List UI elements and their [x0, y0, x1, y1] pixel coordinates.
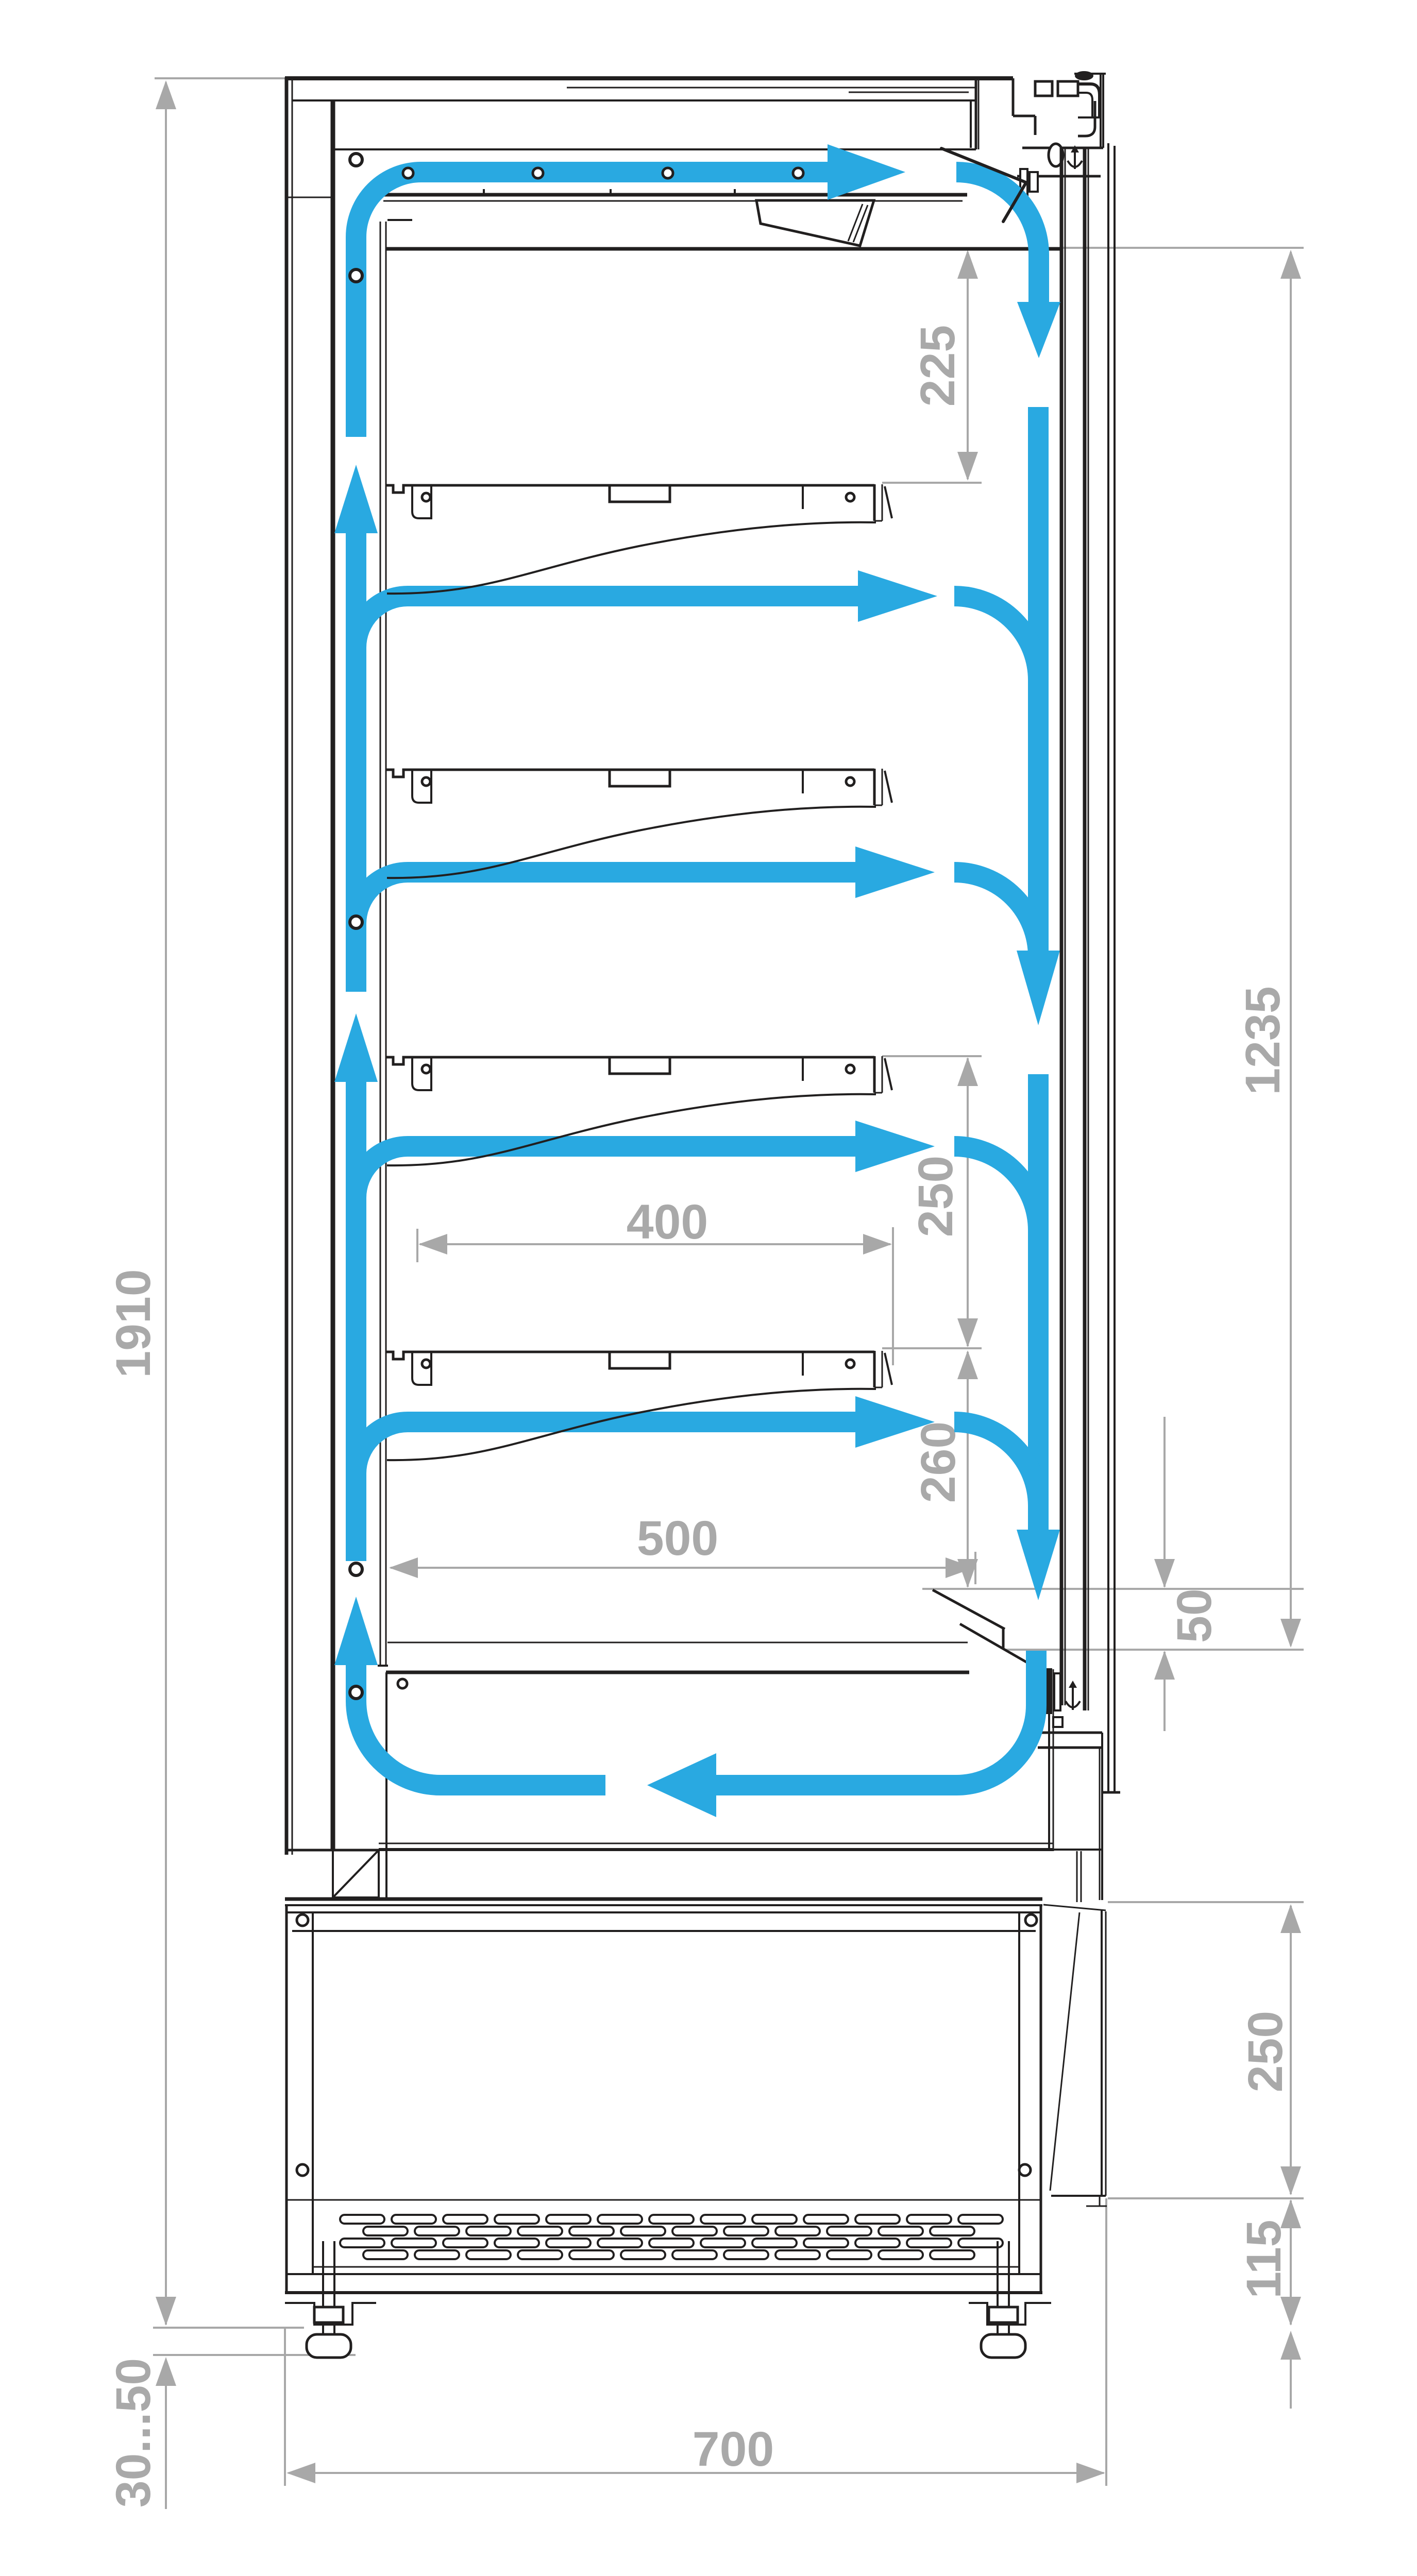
svg-text:250: 250	[908, 1156, 963, 1238]
svg-text:30...50: 30...50	[106, 2358, 161, 2508]
svg-text:400: 400	[627, 1195, 709, 1249]
svg-text:225: 225	[910, 325, 965, 407]
svg-text:115: 115	[1237, 2219, 1291, 2298]
svg-text:250: 250	[1238, 2011, 1293, 2093]
svg-text:700: 700	[693, 2422, 774, 2477]
svg-text:1910: 1910	[106, 1269, 161, 1378]
svg-text:1235: 1235	[1236, 986, 1290, 1095]
svg-text:500: 500	[637, 1511, 719, 1566]
svg-text:260: 260	[911, 1421, 966, 1503]
svg-text:50: 50	[1167, 1588, 1222, 1643]
